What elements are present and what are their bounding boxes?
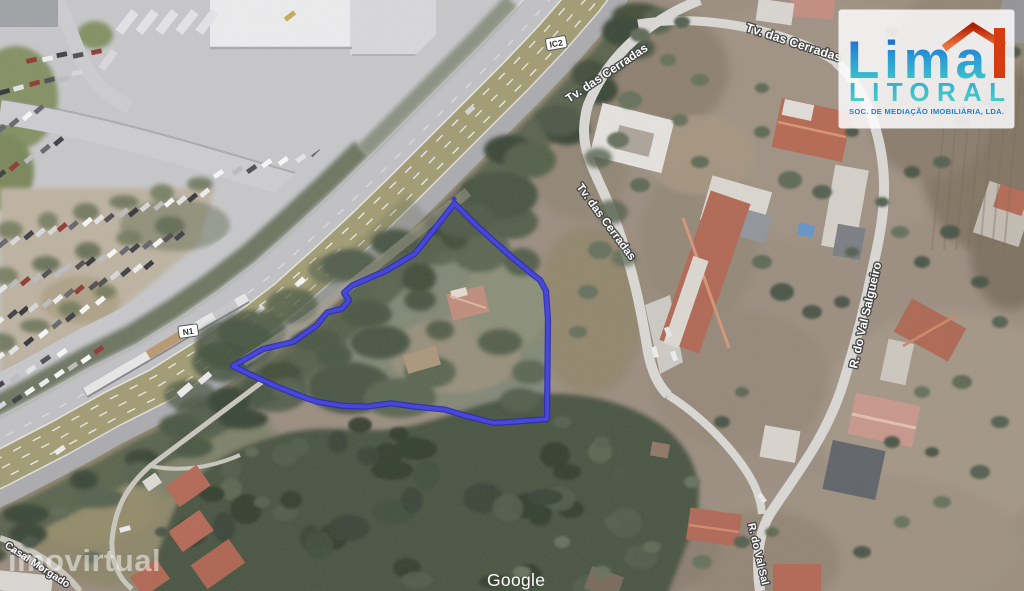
svg-text:LITORAL: LITORAL — [849, 77, 1005, 107]
svg-text:imovirtual: imovirtual — [8, 543, 161, 578]
svg-text:N1: N1 — [182, 326, 194, 337]
svg-text:Google: Google — [487, 570, 545, 590]
svg-text:SOC. DE MEDIAÇÃO IMOBILIÁRIA,: SOC. DE MEDIAÇÃO IMOBILIÁRIA, LDA. — [849, 107, 1004, 116]
